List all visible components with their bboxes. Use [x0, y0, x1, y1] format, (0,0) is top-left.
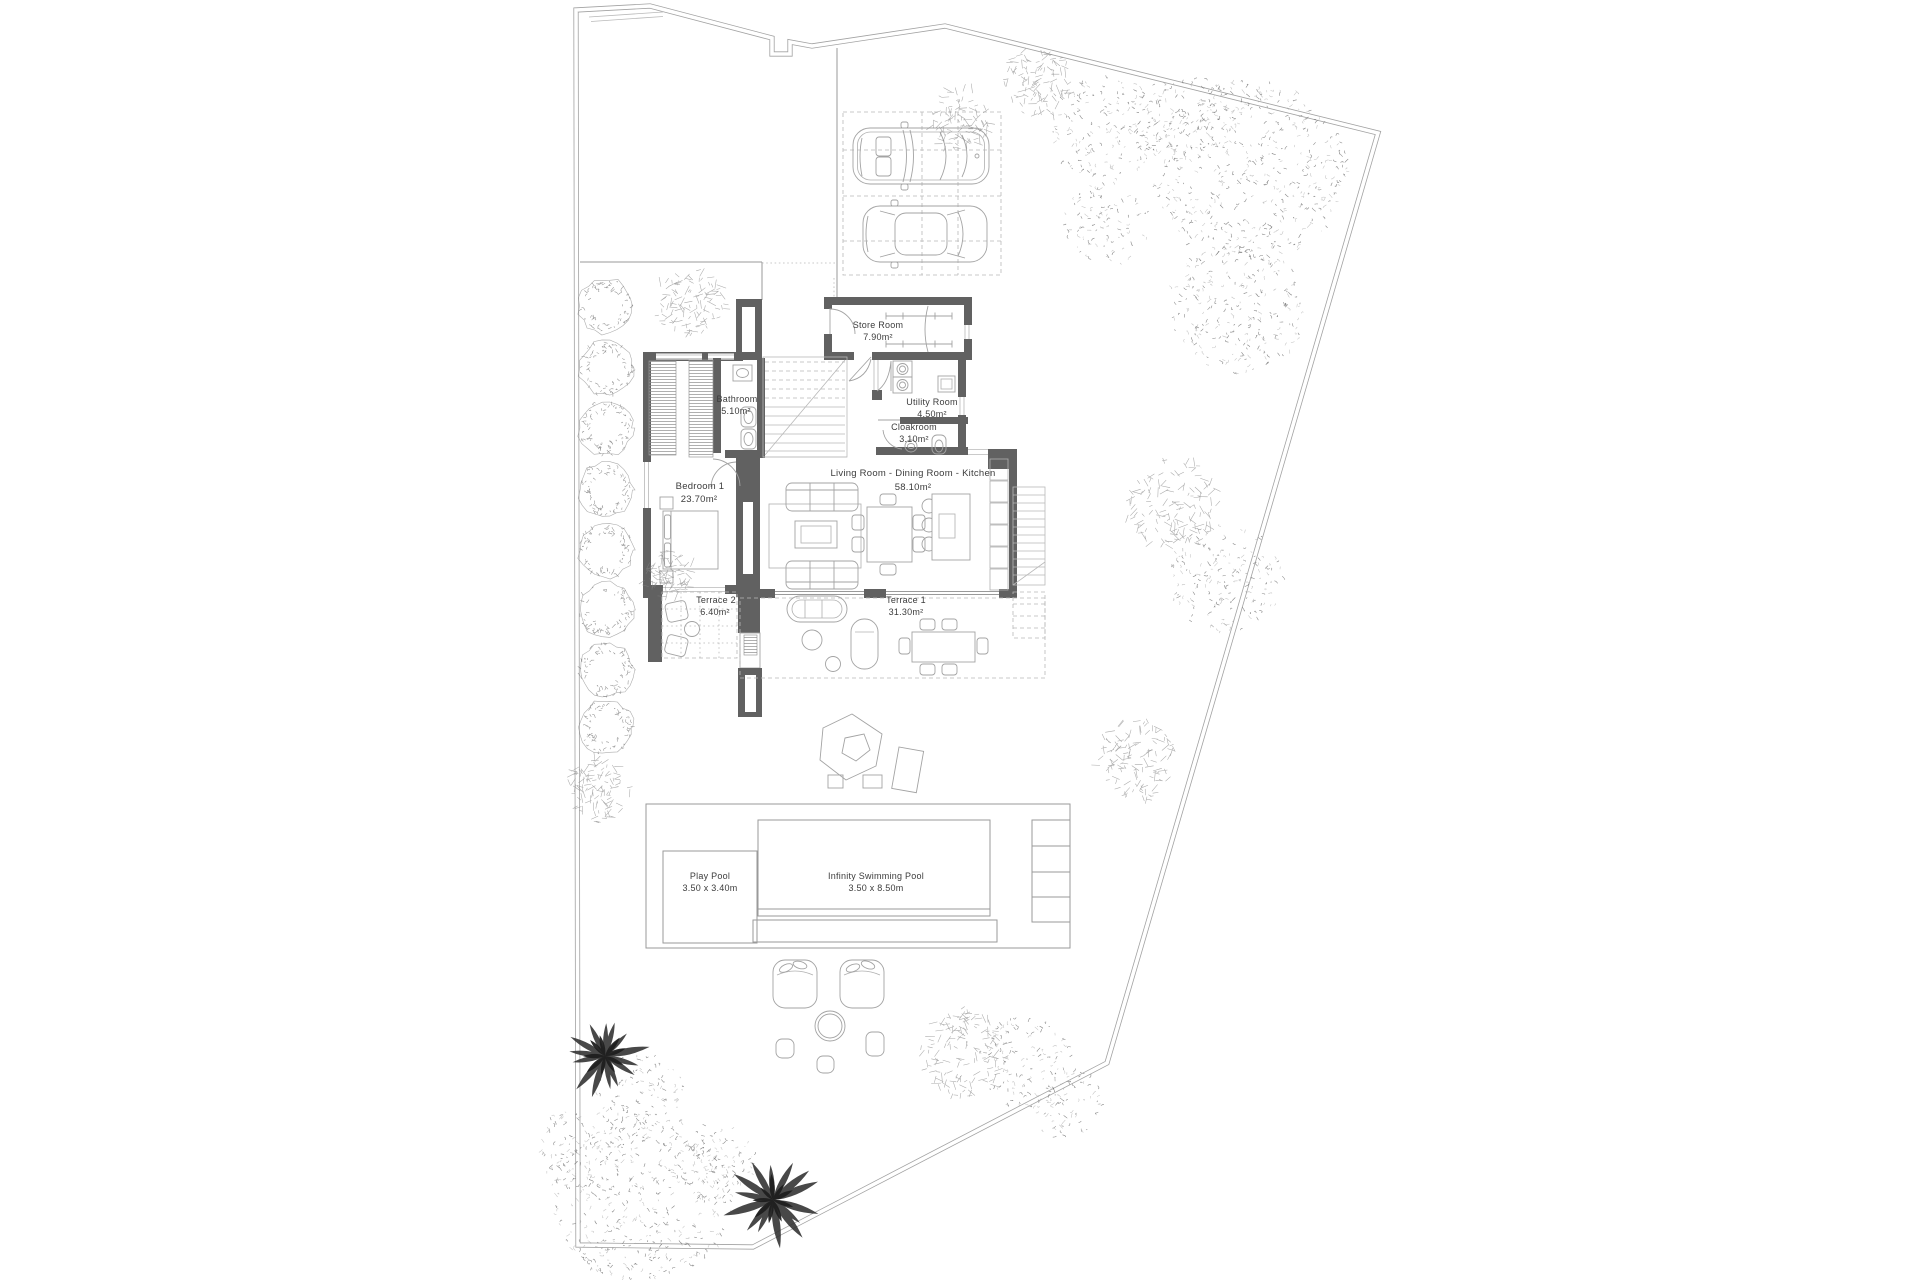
- play-pool: [663, 851, 757, 943]
- tree-graphic: [555, 1114, 732, 1280]
- site-lines: [580, 48, 837, 300]
- kitchen-cabinet-unit: [990, 547, 1008, 568]
- label-store-room: Store Room 7.90m²: [853, 320, 904, 342]
- tree-graphic: [581, 465, 630, 515]
- tree-graphic: [655, 268, 730, 337]
- svg-text:3.50 x 8.50m: 3.50 x 8.50m: [848, 883, 903, 893]
- canopy-dotted-line: [762, 263, 837, 300]
- garden-steps-east: [1013, 487, 1045, 638]
- utility-fixtures: [893, 361, 955, 393]
- infinity-edge: [753, 920, 997, 942]
- svg-text:Terrace 2: Terrace 2: [696, 595, 736, 605]
- tree-graphic: [578, 402, 635, 455]
- tree-graphic: [1091, 719, 1175, 804]
- svg-text:7.90m²: 7.90m²: [863, 332, 893, 342]
- terrace2-furniture: [664, 600, 700, 657]
- floor-plan-canvas: Store Room 7.90m² Bathroom 5.10m² Utilit…: [0, 0, 1920, 1280]
- label-living-room: Living Room - Dining Room - Kitchen 58.1…: [830, 468, 995, 493]
- kitchen-cabinet-unit: [990, 503, 1008, 524]
- label-terrace-2: Terrace 2 6.40m²: [696, 595, 736, 617]
- tree-graphic: [919, 1007, 1008, 1100]
- svg-text:Bathroom: Bathroom: [716, 394, 757, 404]
- tree-graphic: [1172, 244, 1300, 374]
- tree-graphic: [678, 1124, 755, 1198]
- tree-graphic: [1003, 49, 1074, 121]
- parking-area: [843, 112, 1001, 275]
- site-plan-drawing: Store Room 7.90m² Bathroom 5.10m² Utilit…: [0, 0, 1920, 1280]
- svg-text:Living Room - Dining Room - Ki: Living Room - Dining Room - Kitchen: [830, 468, 995, 479]
- svg-text:4.50m²: 4.50m²: [917, 409, 947, 419]
- svg-text:3.10m²: 3.10m²: [899, 434, 929, 444]
- tree-graphic: [581, 581, 636, 637]
- living-room-furniture: [769, 483, 970, 589]
- gate-line: [589, 12, 663, 22]
- svg-text:5.10m²: 5.10m²: [721, 406, 751, 416]
- svg-text:Terrace 1: Terrace 1: [886, 595, 926, 605]
- tree-graphic: [1153, 80, 1348, 260]
- svg-text:3.50 x 3.40m: 3.50 x 3.40m: [682, 883, 737, 893]
- tree-graphic: [1063, 182, 1148, 259]
- staircase: [763, 357, 847, 457]
- pool-steps: [1032, 820, 1070, 922]
- tree-graphic: [926, 84, 995, 152]
- label-cloakroom: Cloakroom 3.10m²: [891, 422, 937, 444]
- svg-text:23.70m²: 23.70m²: [681, 494, 718, 505]
- garden-wall-line: [580, 262, 762, 300]
- tree-graphic: [1065, 182, 1147, 264]
- svg-text:31.30m²: 31.30m²: [889, 607, 924, 617]
- label-utility-room: Utility Room 4.50m²: [906, 397, 958, 419]
- tree-graphic: [1033, 1071, 1100, 1133]
- tree-graphic: [1169, 246, 1303, 374]
- bedroom-furniture: [649, 360, 718, 583]
- svg-text:Utility Room: Utility Room: [906, 397, 958, 407]
- terrace1-furniture: [787, 596, 988, 675]
- label-terrace-1: Terrace 1 31.30m²: [886, 595, 926, 617]
- tree-graphic: [578, 462, 635, 517]
- tree-graphic: [578, 643, 633, 697]
- tree-graphic: [980, 1021, 1074, 1107]
- svg-text:Play Pool: Play Pool: [690, 871, 730, 881]
- room-labels: Store Room 7.90m² Bathroom 5.10m² Utilit…: [676, 320, 996, 893]
- tree-graphic: [542, 1113, 621, 1189]
- label-bedroom-1: Bedroom 1 23.70m²: [676, 481, 725, 505]
- tree-graphic: [582, 402, 632, 456]
- svg-text:Cloakroom: Cloakroom: [891, 422, 937, 432]
- infinity-pool: [758, 820, 990, 916]
- car-coupe-icon: [863, 200, 987, 268]
- svg-text:6.40m²: 6.40m²: [700, 607, 730, 617]
- kitchen-cabinet-unit: [990, 481, 1008, 502]
- lounge-set: [773, 959, 884, 1073]
- tree-graphic: [578, 279, 633, 335]
- svg-text:Bedroom 1: Bedroom 1: [676, 481, 725, 492]
- tree-graphic: [1053, 75, 1158, 176]
- tree-graphic: [1126, 458, 1221, 552]
- svg-text:Infinity Swimming Pool: Infinity Swimming Pool: [828, 871, 924, 881]
- tree-graphic: [1171, 534, 1285, 630]
- label-play-pool: Play Pool 3.50 x 3.40m: [682, 871, 737, 893]
- svg-text:58.10m²: 58.10m²: [895, 482, 932, 493]
- tree-graphic: [583, 703, 634, 754]
- kitchen-cabinet-unit: [990, 525, 1008, 546]
- svg-text:Store Room: Store Room: [853, 320, 904, 330]
- gazebo-umbrella: [820, 714, 924, 793]
- tree-graphic: [578, 524, 635, 579]
- parking-grid: [843, 112, 1001, 275]
- kitchen-cabinet-unit: [990, 569, 1008, 590]
- label-infinity-pool: Infinity Swimming Pool 3.50 x 8.50m: [828, 871, 924, 893]
